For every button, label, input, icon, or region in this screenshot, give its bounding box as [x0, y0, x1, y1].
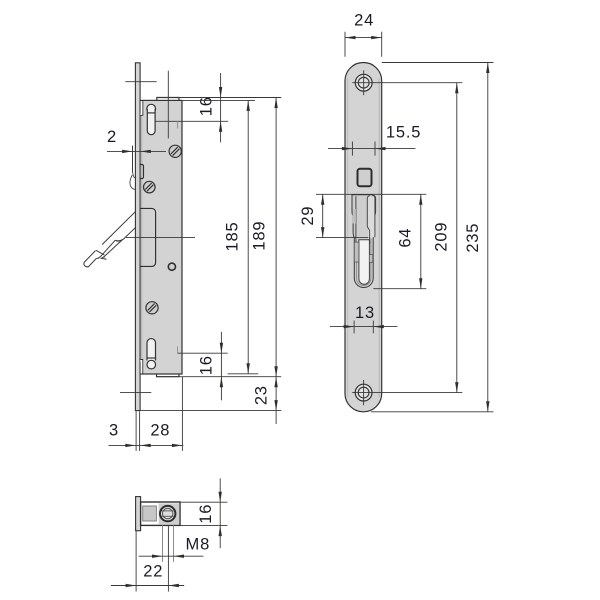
svg-text:185: 185	[223, 222, 241, 252]
svg-text:64: 64	[397, 228, 415, 248]
svg-text:15.5: 15.5	[386, 124, 421, 142]
svg-text:13: 13	[355, 304, 375, 322]
svg-text:16: 16	[197, 504, 215, 524]
svg-text:16: 16	[197, 355, 215, 375]
svg-text:24: 24	[354, 12, 374, 30]
svg-text:M8: M8	[186, 536, 211, 554]
svg-text:28: 28	[150, 422, 170, 440]
svg-text:209: 209	[433, 222, 451, 252]
svg-text:189: 189	[250, 221, 268, 251]
svg-text:29: 29	[299, 206, 317, 226]
svg-text:3: 3	[109, 422, 119, 440]
svg-text:235: 235	[464, 223, 482, 253]
svg-text:23: 23	[253, 385, 271, 405]
svg-text:16: 16	[197, 96, 215, 116]
svg-text:2: 2	[107, 128, 117, 146]
svg-text:22: 22	[143, 562, 163, 580]
